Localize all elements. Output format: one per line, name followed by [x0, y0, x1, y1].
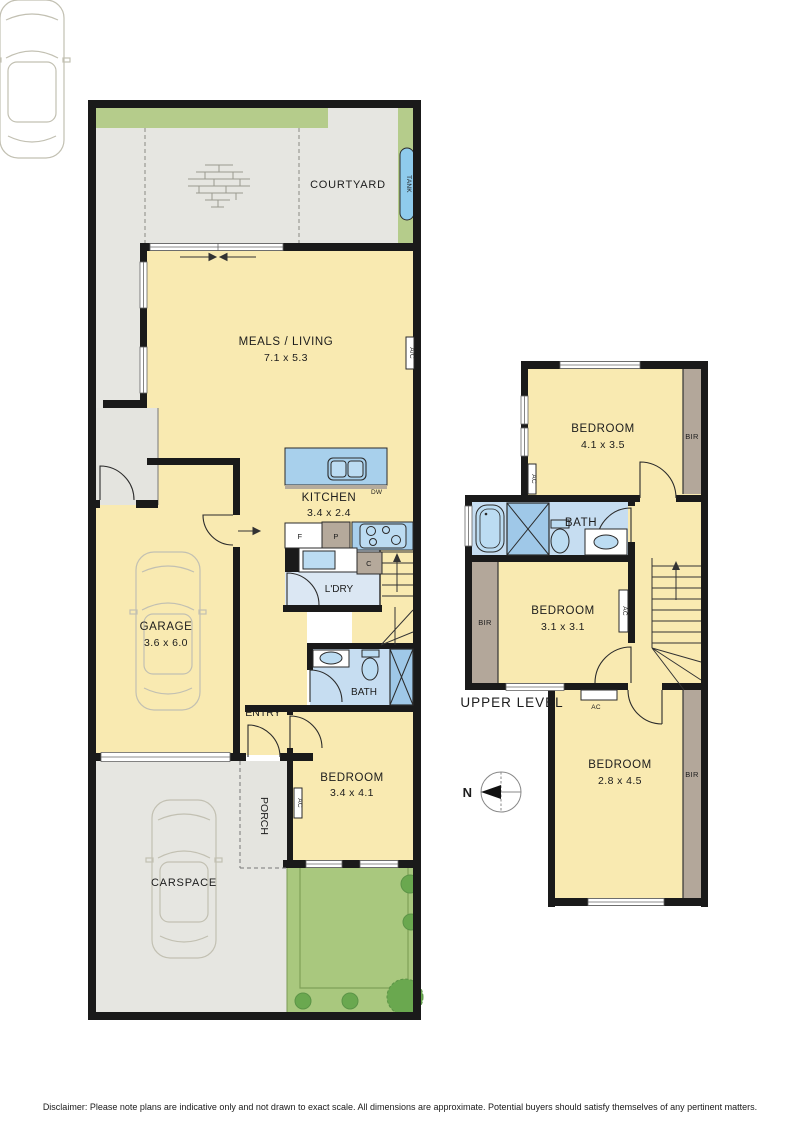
porch-label: PORCH — [258, 797, 270, 835]
garage-name: GARAGE — [140, 621, 193, 633]
bedroom1-dims: 4.1 x 3.5 — [581, 439, 625, 451]
pantry-label: P — [333, 532, 338, 541]
north-label: N — [463, 785, 472, 800]
disclaimer-text: Disclaimer: Please note plans are indica… — [43, 1102, 757, 1112]
bir2-label: BIR — [478, 618, 492, 627]
toilet-bowl-ground — [362, 658, 378, 680]
sink-bowl-right — [348, 461, 363, 477]
entry-niche — [96, 408, 158, 505]
ground-floor-plan: COURTYARD TANK — [0, 0, 423, 1020]
garage-dims: 3.6 x 6.0 — [144, 637, 188, 649]
courtyard-label: COURTYARD — [310, 179, 386, 191]
side-path — [96, 248, 140, 408]
cupboard-label: C — [366, 559, 372, 568]
ac-unit-bedroom3 — [581, 690, 617, 700]
courtyard-area — [96, 108, 413, 248]
courtyard-grass-strip — [96, 108, 328, 128]
carspace-label: CARSPACE — [151, 877, 217, 889]
garage-room — [96, 465, 233, 755]
kitchen-dims: 3.4 x 2.4 — [307, 507, 351, 519]
toilet-bowl-upper — [551, 529, 569, 553]
floorplan-page: COURTYARD TANK — [0, 0, 800, 1131]
bir1-label: BIR — [685, 432, 699, 441]
bir3 — [683, 690, 701, 898]
bedroom3-dims: 2.8 x 4.5 — [598, 775, 642, 787]
bir3-label: BIR — [685, 770, 699, 779]
kitchen-name: KITCHEN — [302, 492, 357, 504]
meals-living-dims: 7.1 x 5.3 — [264, 352, 308, 364]
upper-hallway — [628, 498, 701, 690]
laundry-label: L'DRY — [325, 584, 354, 595]
north-compass: N — [463, 772, 521, 812]
fridge-label: F — [298, 532, 303, 541]
sink-bowl-left — [331, 461, 346, 477]
bedroom1-name: BEDROOM — [571, 423, 635, 435]
ac-bedroom1-label: AC — [530, 474, 537, 484]
fridge-space — [285, 523, 322, 548]
ac-living-label: A/C — [408, 347, 415, 359]
tank-label: TANK — [405, 175, 412, 193]
bedroom2-name: BEDROOM — [531, 605, 595, 617]
bath-upper-label: BATH — [565, 517, 597, 529]
north-arrow — [481, 785, 501, 799]
bath-ground-label: BATH — [351, 687, 377, 698]
ac-bedroom3-label: AC — [591, 704, 601, 711]
upper-level-title: UPPER LEVEL — [460, 695, 563, 710]
meals-living-name: MEALS / LIVING — [239, 336, 334, 348]
dishwasher-label: DW — [371, 489, 383, 496]
ac-bedroom-ground-label: AC — [296, 798, 303, 808]
ac-bedroom2-label: AC — [621, 606, 628, 616]
laundry-trough — [303, 551, 335, 569]
car-outline — [0, 0, 70, 158]
toilet-tank-ground — [362, 650, 379, 657]
bedroom3-room — [555, 690, 701, 898]
bedroom1-room — [528, 369, 701, 502]
floorplan-svg: COURTYARD TANK — [0, 0, 800, 1131]
upper-level-plan: AC AC AC BEDROOM 4.1 x 3.5 BIR BATH BEDR… — [460, 361, 708, 907]
bedroom-ground-name: BEDROOM — [320, 772, 384, 784]
laundry-fixtures — [299, 548, 357, 572]
entry-label: ENTRY — [245, 707, 280, 719]
bedroom-ground-room — [293, 712, 413, 860]
bedroom3-name: BEDROOM — [588, 759, 652, 771]
bedroom2-dims: 3.1 x 3.1 — [541, 621, 585, 633]
bedroom-ground-dims: 3.4 x 4.1 — [330, 787, 374, 799]
vanity-basin-upper — [594, 535, 618, 549]
vanity-basin-ground — [320, 652, 342, 664]
